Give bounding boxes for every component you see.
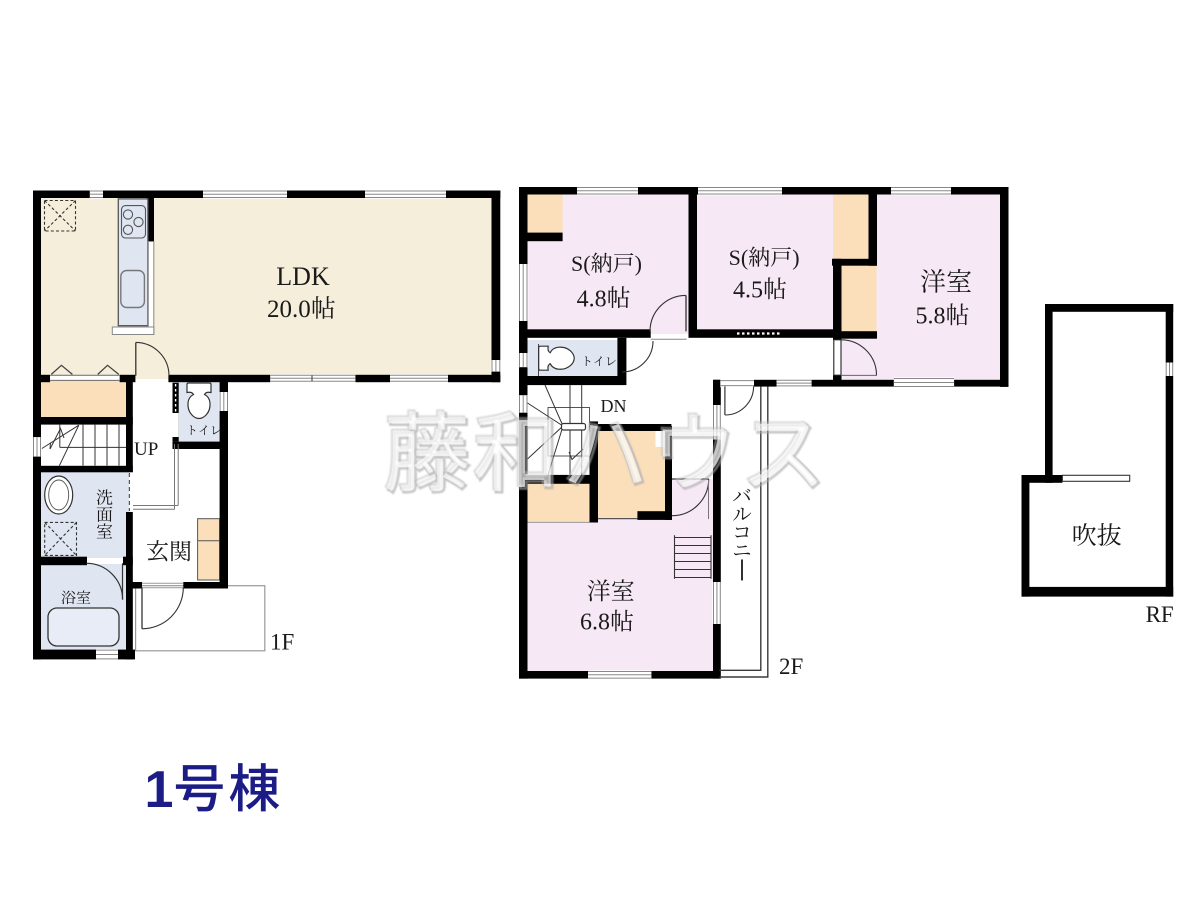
svg-text:LDK: LDK bbox=[276, 262, 330, 291]
svg-text:6.8: 6.8 bbox=[580, 610, 610, 636]
svg-text:1F: 1F bbox=[270, 630, 294, 655]
svg-text:4.8: 4.8 bbox=[577, 286, 607, 312]
svg-text:): ) bbox=[792, 245, 799, 270]
svg-text:4.5: 4.5 bbox=[733, 278, 763, 304]
svg-text:1: 1 bbox=[145, 761, 174, 819]
svg-text:5.8: 5.8 bbox=[916, 304, 946, 330]
svg-text:RF: RF bbox=[1146, 602, 1174, 627]
svg-text:S(: S( bbox=[729, 245, 749, 270]
svg-text:DN: DN bbox=[601, 396, 627, 416]
svg-text:): ) bbox=[635, 251, 642, 276]
svg-text:20.0: 20.0 bbox=[267, 296, 311, 323]
svg-text:S(: S( bbox=[571, 251, 591, 276]
svg-text:2F: 2F bbox=[779, 654, 803, 679]
svg-text:UP: UP bbox=[134, 439, 158, 460]
